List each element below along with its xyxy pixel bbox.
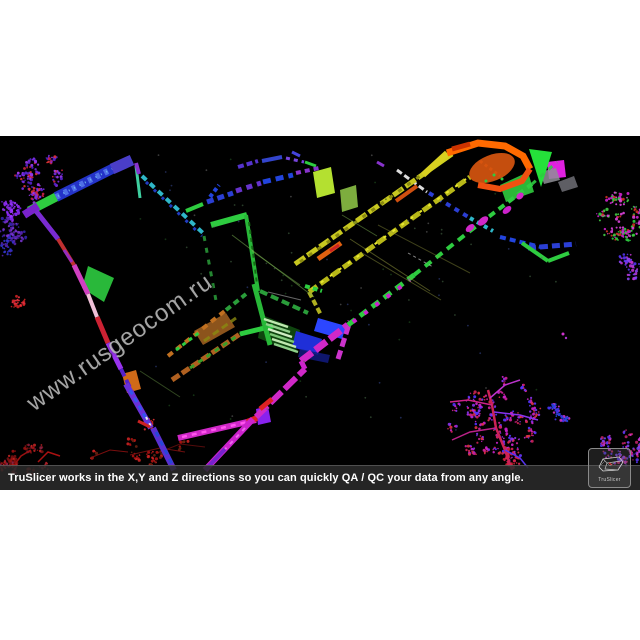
- caption-text: TruSlicer works in the X,Y and Z directi…: [0, 466, 640, 490]
- wireframe-slicer-icon: [595, 453, 625, 475]
- truslicer-button-label: TruSlicer: [598, 477, 621, 483]
- truslicer-button[interactable]: TruSlicer: [588, 448, 631, 488]
- screenshot-stage: www.rusgeocom.ru TruSlicer works in the …: [0, 0, 640, 640]
- caption-bar: TruSlicer works in the X,Y and Z directi…: [0, 465, 640, 490]
- point-cloud-viewport[interactable]: [0, 0, 640, 640]
